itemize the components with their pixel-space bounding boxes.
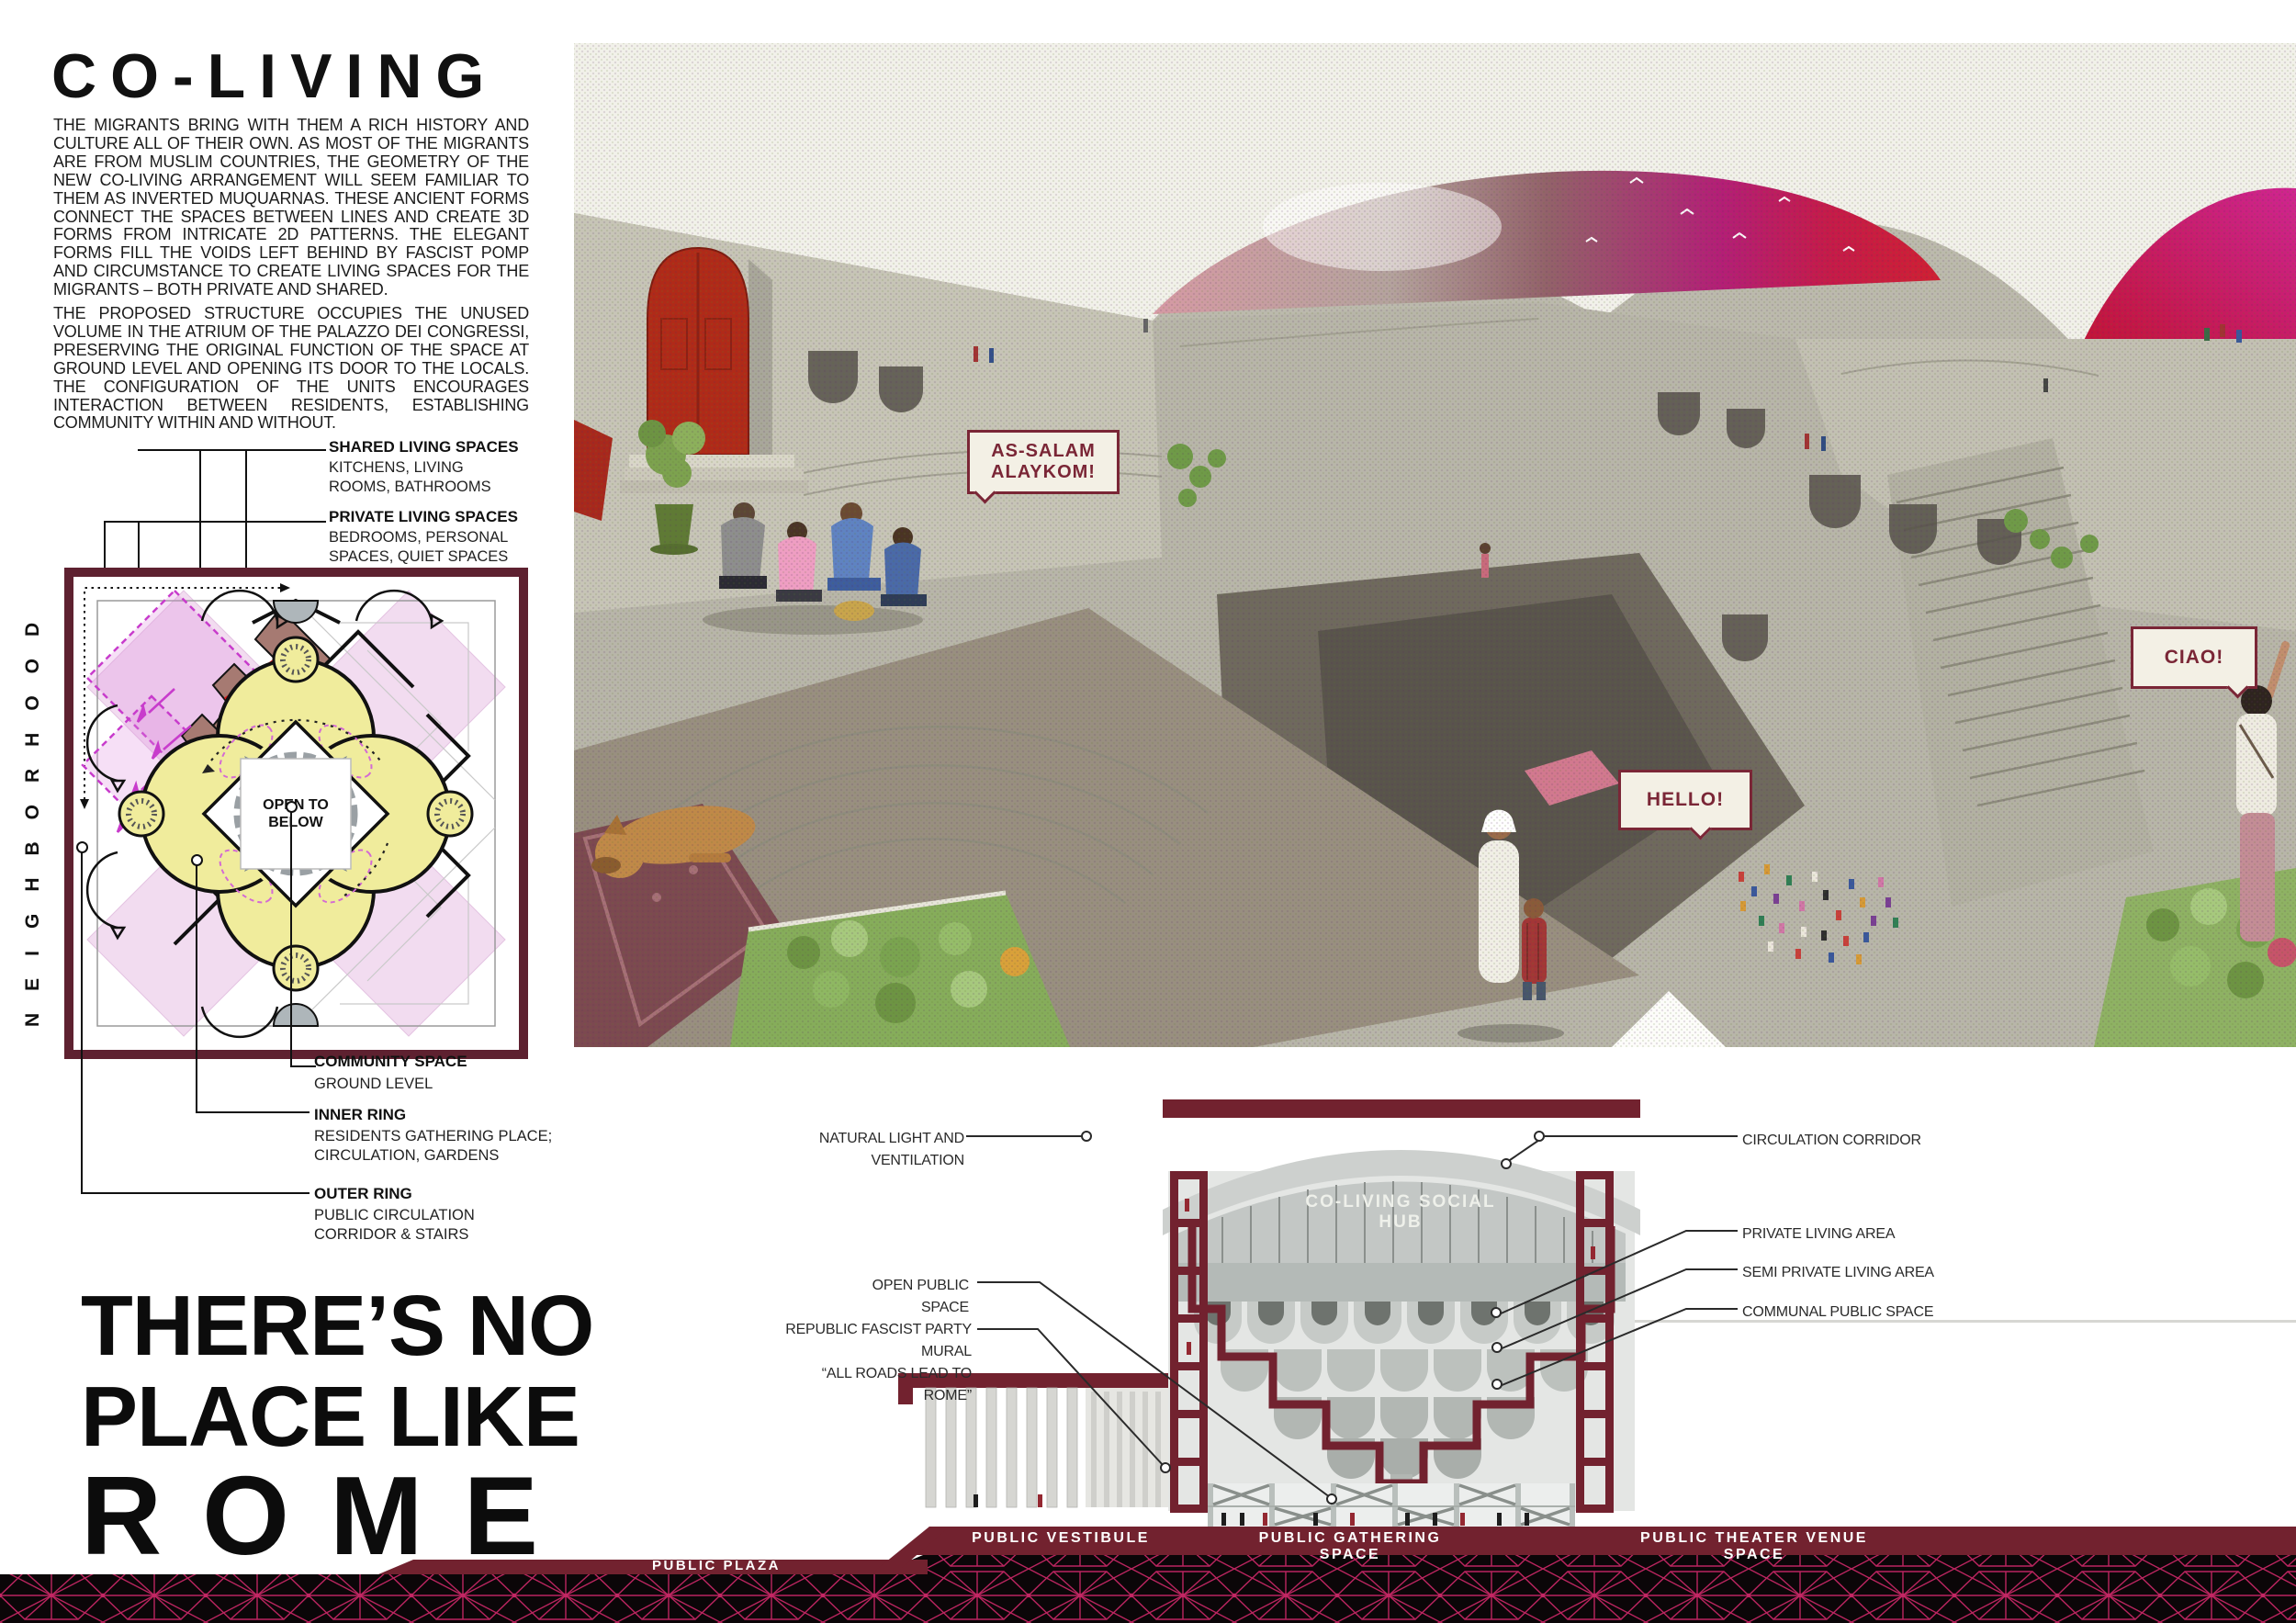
lattice-band (0, 1555, 2296, 1623)
callout-shared-title: SHARED LIVING SPACES (329, 438, 519, 456)
theater-floor-line (1635, 1320, 2296, 1323)
open-to-below-label: OPEN TO BELOW (236, 786, 355, 841)
label-private-living: PRIVATE LIVING AREA (1742, 1223, 1895, 1245)
presentation-board: CO-LIVING THE MIGRANTS BRING WITH THEM A… (0, 0, 2296, 1623)
atrium-render: AS-SALAM ALAYKOM! HELLO! CIAO! (574, 43, 2296, 1047)
speech-bubble-english: HELLO! (1618, 770, 1752, 830)
page-title: CO-LIVING (51, 40, 498, 112)
cloud (1263, 183, 1502, 271)
callout-outer-ring-title: OUTER RING (314, 1185, 412, 1203)
leader-line (290, 1065, 316, 1067)
label-natural-light: NATURAL LIGHT AND VENTILATION (781, 1128, 964, 1172)
callout-outer-ring-desc: PUBLIC CIRCULATION CORRIDOR & STAIRS (314, 1206, 475, 1245)
intro-paragraph-2: THE PROPOSED STRUCTURE OCCUPIES THE UNUS… (53, 305, 529, 433)
tagline-line-1: THERE’S NO (81, 1277, 593, 1375)
speech-bubble-italian-text: CIAO! (2165, 647, 2224, 669)
callout-inner-ring-desc: RESIDENTS GATHERING PLACE; CIRCULATION, … (314, 1127, 552, 1166)
callout-community-title: COMMUNITY SPACE (314, 1053, 467, 1071)
leader-dot (76, 841, 88, 853)
building-section-drawing (762, 1088, 2296, 1531)
intro-paragraph-1: THE MIGRANTS BRING WITH THEM A RICH HIST… (53, 117, 529, 299)
speech-bubble-italian: CIAO! (2131, 626, 2257, 689)
callout-private-title: PRIVATE LIVING SPACES (329, 508, 518, 526)
label-mural: REPUBLIC FASCIST PARTY MURAL “ALL ROADS … (779, 1319, 972, 1407)
label-public-gathering: PUBLIC GATHERING SPACE (1235, 1530, 1465, 1563)
label-open-public-space: OPEN PUBLIC SPACE (850, 1275, 969, 1319)
leader-line (81, 847, 83, 1194)
label-public-plaza: PUBLIC PLAZA (634, 1558, 799, 1573)
render-graphics (574, 43, 2296, 1047)
speech-bubble-arabic-text: AS-SALAM ALAYKOM! (991, 441, 1096, 483)
leader-dot (286, 801, 298, 813)
speech-bubble-arabic: AS-SALAM ALAYKOM! (967, 430, 1120, 494)
roof-bar (1163, 1099, 1640, 1118)
callout-private-desc: BEDROOMS, PERSONAL SPACES, QUIET SPACES (329, 528, 508, 567)
hub-sign-text: CO-LIVING SOCIAL HUB (1304, 1192, 1497, 1233)
label-public-theater: PUBLIC THEATER VENUE SPACE (1621, 1530, 1887, 1563)
leader-line (196, 1111, 310, 1113)
label-public-vestibule: PUBLIC VESTIBULE (969, 1530, 1153, 1547)
speech-bubble-english-text: HELLO! (1647, 789, 1724, 811)
hub-sign-wall (1177, 1263, 1626, 1302)
leader-dot (191, 854, 203, 866)
label-semi-private-living: SEMI PRIVATE LIVING AREA (1742, 1262, 1934, 1284)
leader-line (138, 449, 326, 451)
leader-line (81, 1192, 310, 1194)
callout-community-desc: GROUND LEVEL (314, 1075, 433, 1094)
neighborhood-label: NEIGHBORHOOD (22, 568, 44, 1059)
label-communal-public: COMMUNAL PUBLIC SPACE (1742, 1302, 1933, 1324)
callout-inner-ring-title: INNER RING (314, 1106, 406, 1124)
label-circulation-corridor: CIRCULATION CORRIDOR (1742, 1130, 1921, 1152)
leader-line (196, 860, 197, 1113)
callout-shared-desc: KITCHENS, LIVING ROOMS, BATHROOMS (329, 458, 491, 497)
leader-line (290, 806, 292, 1067)
